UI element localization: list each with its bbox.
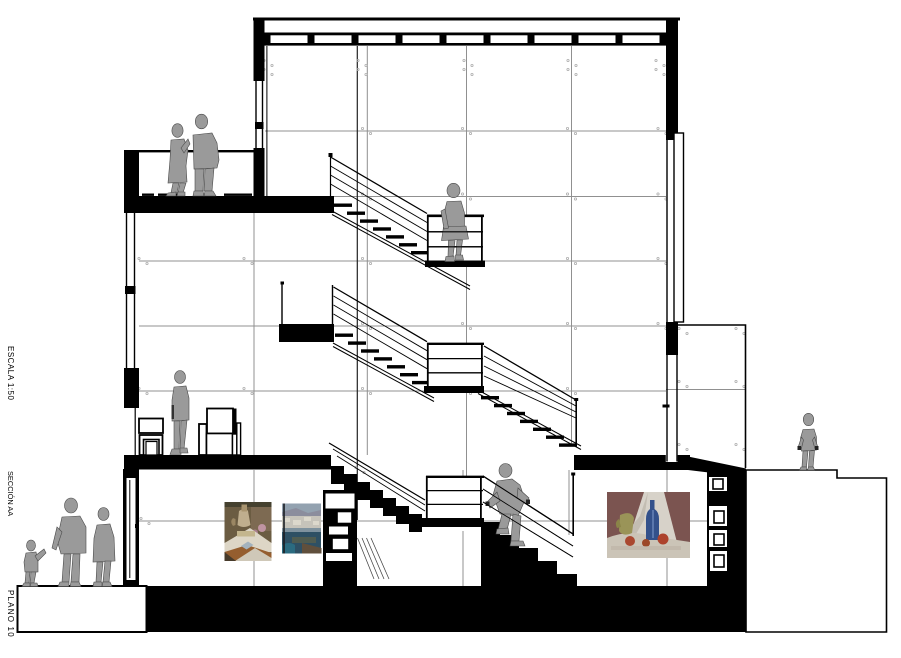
svg-text:PLANO 10: PLANO 10 — [6, 590, 15, 638]
svg-text:SECCIÓN AA: SECCIÓN AA — [6, 471, 15, 516]
svg-text:ESCALA 1:50: ESCALA 1:50 — [6, 346, 15, 400]
